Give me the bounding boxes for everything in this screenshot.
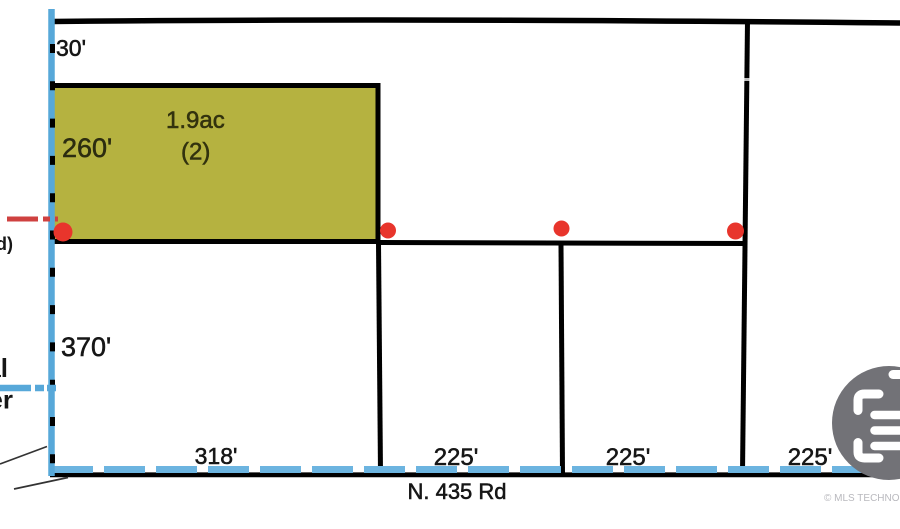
svg-text:(2): (2) [181, 139, 210, 166]
svg-text:N. 435 Rd: N. 435 Rd [407, 479, 506, 504]
svg-text:225': 225' [606, 444, 651, 471]
svg-text:260': 260' [62, 133, 112, 163]
svg-text:225': 225' [434, 444, 479, 471]
svg-text:318': 318' [195, 443, 238, 469]
svg-text:al: al [0, 353, 8, 383]
svg-text:er: er [0, 385, 13, 415]
svg-text:370': 370' [61, 332, 111, 362]
svg-text:30': 30' [56, 35, 86, 61]
svg-text:225': 225' [788, 444, 833, 471]
svg-text:© MLS TECHNOLO: © MLS TECHNOLO [824, 493, 900, 504]
svg-text:1.9ac: 1.9ac [166, 107, 225, 134]
svg-text:d): d) [0, 234, 13, 254]
